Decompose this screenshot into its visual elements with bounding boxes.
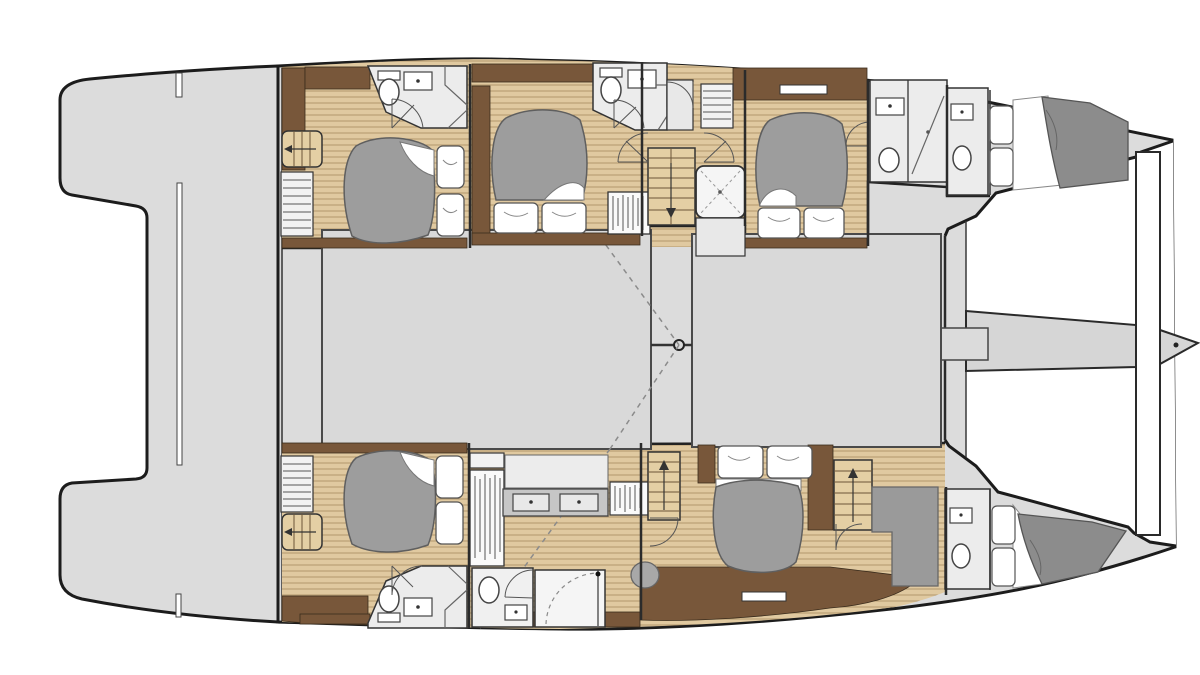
toilet-icon (953, 146, 971, 170)
pillow (494, 203, 538, 233)
bow-bathroom-floor (945, 489, 990, 589)
door-hinge-dot (596, 572, 601, 577)
port-bow-cabin (947, 88, 1128, 195)
wardrobe-box (608, 192, 650, 234)
trim-stbd-aft-edge (300, 614, 370, 624)
pillow (990, 148, 1013, 186)
saloon-coachroof (322, 230, 941, 449)
hanging-clothes-lines (613, 195, 643, 231)
trim-port-mid-bottom (472, 233, 640, 245)
stbd-aft-bed (344, 451, 463, 552)
wardrobe-box (610, 482, 648, 515)
bed-duvet (713, 480, 803, 572)
trim-port-fwd-top (733, 68, 867, 100)
sink-faucet-dot (888, 104, 892, 108)
shower-drain-dot (926, 130, 930, 134)
toilet-icon (879, 148, 899, 172)
saloon-starboard-block (692, 234, 941, 447)
toilet-tank (600, 68, 622, 77)
sink-faucet-dot (416, 605, 420, 609)
shelf-box (470, 453, 504, 468)
deck-slit-top (176, 73, 182, 97)
toilet-icon (379, 79, 399, 105)
sink-faucet-dot (577, 500, 581, 504)
deck-plan-canvas (0, 0, 1200, 675)
deck-plan-drawing (0, 0, 1200, 675)
pillow (758, 208, 800, 238)
trim-owner-head-left (698, 445, 715, 483)
forward-crossbeam (1136, 152, 1160, 535)
pillow (542, 203, 586, 233)
pillow (990, 106, 1013, 144)
pillow (437, 146, 464, 188)
stbd-shower-room (535, 570, 605, 627)
shower-room-floor (535, 570, 605, 627)
toilet-icon (479, 577, 499, 603)
toilet-icon (379, 586, 399, 612)
sink-faucet-dot (959, 513, 962, 516)
bowsprit-fitting-dot (1174, 343, 1179, 348)
pillow (437, 194, 464, 236)
saloon-port-block (322, 230, 651, 449)
pillow (436, 502, 463, 544)
port-fwd-vent-hatch (780, 85, 827, 94)
pillow (767, 446, 812, 478)
pouf-seat (631, 562, 659, 588)
trim-port-mid-left (472, 86, 490, 244)
shower-drain-dot (718, 190, 722, 194)
aft-deck-outline (60, 66, 278, 622)
stbd-toilet-room (472, 568, 533, 627)
toilet-icon (601, 77, 621, 103)
pillow (718, 446, 763, 478)
pillow (436, 456, 463, 498)
trim-port-fwd-bottom (733, 238, 867, 248)
sink-faucet-dot (529, 500, 533, 504)
toilet-tank (378, 613, 400, 622)
pillow (992, 506, 1015, 544)
bowsprit-tip (1160, 330, 1198, 364)
vanity-cabinet (505, 455, 608, 488)
pillow (804, 208, 844, 238)
deck-slit-long (177, 183, 182, 465)
toilet-icon (952, 544, 970, 568)
sink-faucet-dot (416, 79, 420, 83)
landing-nook (696, 218, 745, 256)
owner-vent-hatch (742, 592, 786, 601)
trim-port-aft-top (305, 67, 370, 89)
stbd-hanging-locker (470, 453, 504, 566)
sink-faucet-dot (514, 610, 517, 613)
pillow (992, 548, 1015, 586)
port-mid-wardrobe (608, 192, 650, 234)
sink-faucet-dot (960, 110, 963, 113)
deck-slit-bottom (176, 594, 181, 617)
corridor-nook (667, 80, 693, 130)
trim-port-mid-top (472, 64, 593, 82)
